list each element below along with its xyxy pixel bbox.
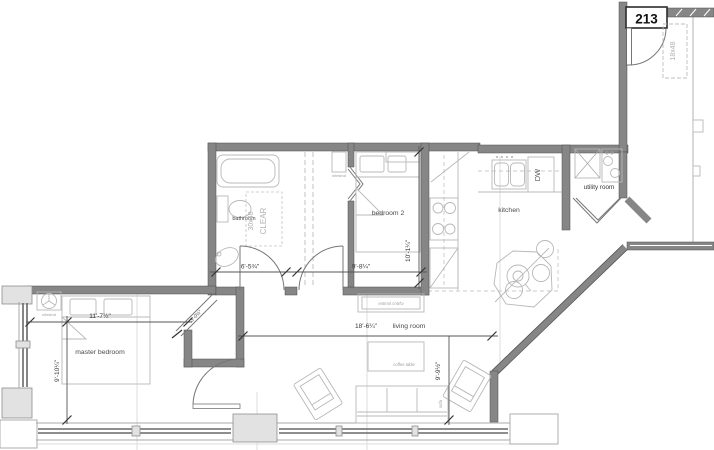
chair xyxy=(537,241,554,258)
pier xyxy=(233,414,277,442)
entry-storage-label: 18x48 xyxy=(670,41,677,60)
armchair xyxy=(443,360,492,412)
master-door-leaf xyxy=(193,404,240,409)
pier xyxy=(2,286,32,304)
clear-floor-size-label: 30x48 xyxy=(248,211,255,230)
sofa xyxy=(356,386,448,423)
dresser xyxy=(386,152,420,162)
window-mullion xyxy=(132,426,140,436)
armchair xyxy=(293,368,342,421)
nightstand-label: nitestnd xyxy=(42,312,56,317)
floor-plan-drawing: 213 18x48 bathroom 30x48 CLEAR nitestnd … xyxy=(0,0,714,450)
dishwasher-label: DW xyxy=(533,168,542,181)
bathroom-sink xyxy=(212,244,241,270)
clear-floor-note-label: CLEAR xyxy=(259,207,268,234)
dim-living-depth: 9'-9½" xyxy=(434,361,442,380)
floor-plan-canvas: 213 18x48 bathroom 30x48 CLEAR nitestnd … xyxy=(0,0,714,450)
wall-bed2-closet-stub-bottom xyxy=(348,201,354,287)
dim-living-width: 18'-6¼" xyxy=(355,323,378,330)
sofa-label: sofa xyxy=(438,399,443,408)
dim-master-depth: 9'-10¼" xyxy=(54,359,61,382)
entry-door-swing xyxy=(629,28,666,65)
bathtub-inner xyxy=(221,159,275,183)
wall-utility-angle xyxy=(627,199,649,221)
toilet-tank xyxy=(217,196,228,222)
dim-bedroom2-width: 9'-8¼" xyxy=(352,264,371,271)
coffee-table-label: coffee table xyxy=(393,362,415,367)
kitchen-sink xyxy=(492,160,526,189)
kitchen: DW kitchen xyxy=(430,152,562,307)
window-mullion xyxy=(336,426,342,436)
master-bedroom-label: master bedroom xyxy=(75,349,125,356)
corner-counter xyxy=(431,152,469,182)
wall-bay-side xyxy=(490,371,498,422)
wall-closet-left xyxy=(184,330,192,367)
utility-room: utility room xyxy=(573,149,622,223)
corridor-notch xyxy=(693,120,703,132)
living-room: entmnt cntr/tv coffee table sofa living … xyxy=(293,294,491,423)
dim-bathroom-width: 6'-5¾" xyxy=(241,264,260,271)
living-room-label: living room xyxy=(393,323,426,330)
chair xyxy=(506,282,523,299)
entertainment-label: entmnt cntr/tv xyxy=(378,301,404,306)
unit-number: 213 xyxy=(635,12,658,27)
pier xyxy=(0,420,37,448)
wall-bed2-closet-stub-top xyxy=(348,143,354,167)
pillow xyxy=(360,156,384,172)
closet-angled-door-inner xyxy=(181,300,217,336)
wall-top xyxy=(208,143,480,151)
bedroom2-door-swing xyxy=(299,246,343,290)
pillow xyxy=(388,156,406,172)
wall-utility-right xyxy=(619,152,627,198)
reference-grid xyxy=(2,14,693,450)
entry: 213 18x48 xyxy=(626,7,687,78)
utility-door-inner xyxy=(576,198,620,220)
wall-closet-right xyxy=(236,287,244,367)
bed-fold xyxy=(62,317,86,339)
nightstand xyxy=(332,152,346,172)
wall-closet-bottom xyxy=(184,359,244,367)
bedroom2-label: bedroom 2 xyxy=(372,210,405,217)
dim-master-width: 11'-7½" xyxy=(89,312,111,320)
dim-bedroom2-depth: 10'-1¼" xyxy=(405,239,412,262)
pier xyxy=(2,388,32,418)
nightstand-label: nitestnd xyxy=(332,173,346,178)
wall-master-top xyxy=(28,286,216,294)
dining-table xyxy=(494,251,552,307)
window-mullion xyxy=(16,341,30,348)
table-center xyxy=(507,265,529,287)
utility-room-label: utility room xyxy=(584,184,614,191)
wall-hall-b xyxy=(285,287,297,295)
corridor-notch xyxy=(693,166,700,176)
entry-door-leaf xyxy=(627,28,632,65)
chair xyxy=(533,265,550,282)
kitchen-label: kitchen xyxy=(498,207,520,214)
pier xyxy=(510,414,558,444)
wall-utility-left xyxy=(562,145,570,230)
sink-bowl xyxy=(495,163,509,186)
window-mullion xyxy=(412,426,418,436)
sink-bowl xyxy=(511,163,525,186)
